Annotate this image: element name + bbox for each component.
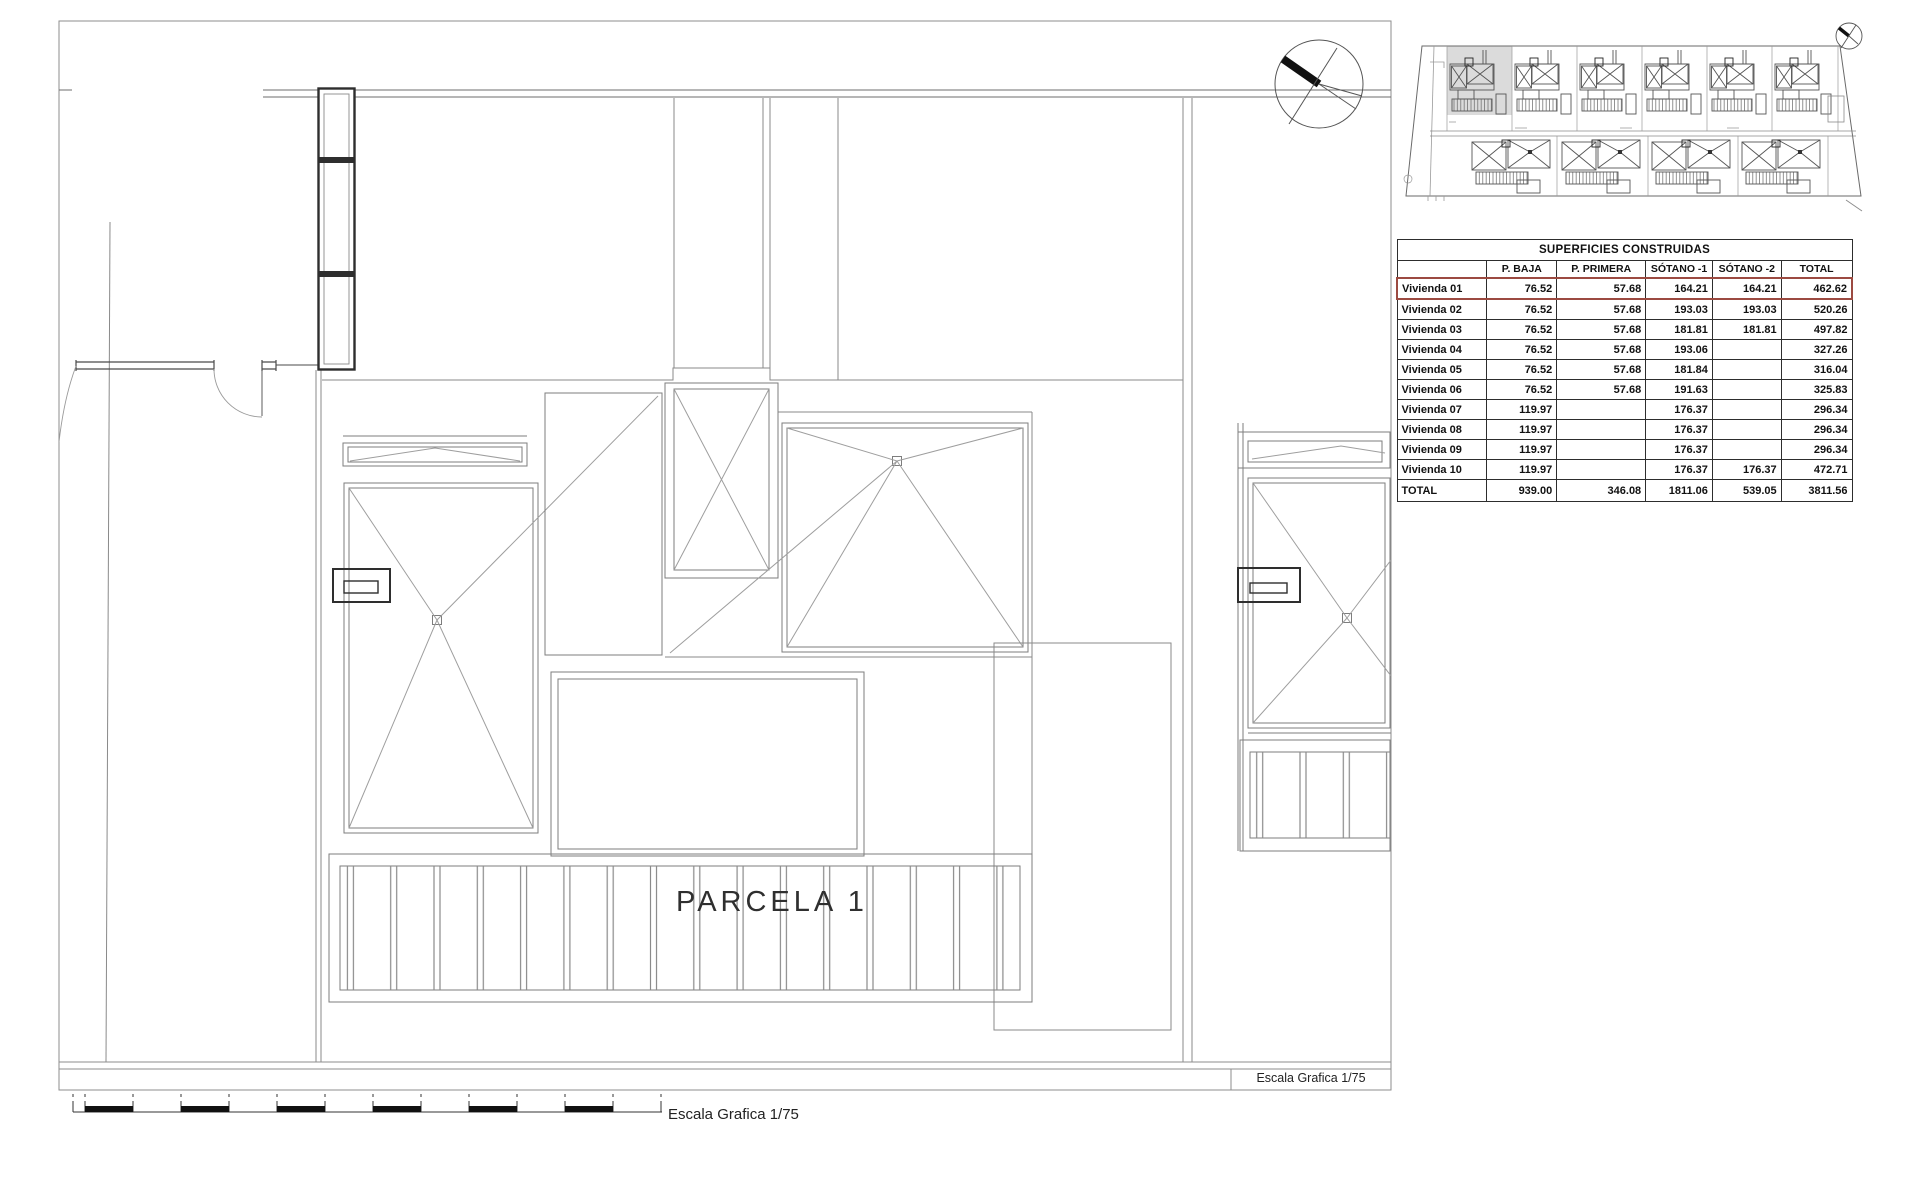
- column-header: SÓTANO -2: [1712, 261, 1781, 279]
- column-header: P. PRIMERA: [1557, 261, 1646, 279]
- area-value: 181.81: [1712, 320, 1781, 340]
- area-value: [1712, 340, 1781, 360]
- entry-door: [59, 360, 318, 442]
- area-value: [1712, 440, 1781, 460]
- table-row: Vivienda 0176.5257.68164.21164.21462.62: [1397, 278, 1852, 299]
- area-value: 119.97: [1487, 420, 1557, 440]
- area-value: [1712, 360, 1781, 380]
- upper-planter: [343, 436, 527, 466]
- area-value: 76.52: [1487, 360, 1557, 380]
- corner-cell: [1397, 261, 1487, 279]
- row-label: Vivienda 02: [1397, 299, 1487, 320]
- area-value: 176.37: [1646, 400, 1713, 420]
- street-lines: [59, 90, 1391, 97]
- area-value: [1557, 460, 1646, 480]
- table-row: Vivienda 10119.97176.37176.37472.71: [1397, 460, 1852, 480]
- area-value: 472.71: [1781, 460, 1852, 480]
- pergola: [329, 854, 1032, 1002]
- area-value: 181.81: [1646, 320, 1713, 340]
- scale-box-label: Escala Grafica 1/75: [1233, 1071, 1389, 1089]
- column-header: SÓTANO -1: [1646, 261, 1713, 279]
- row-label: Vivienda 07: [1397, 400, 1487, 420]
- surface-table-body: SUPERFICIES CONSTRUIDASP. BAJAP. PRIMERA…: [1397, 240, 1852, 502]
- area-value: 57.68: [1557, 320, 1646, 340]
- row-label: Vivienda 01: [1397, 278, 1487, 299]
- area-value: 57.68: [1557, 380, 1646, 400]
- surface-table: SUPERFICIES CONSTRUIDASP. BAJAP. PRIMERA…: [1396, 239, 1853, 502]
- area-value: 327.26: [1781, 340, 1852, 360]
- terrace: [551, 672, 864, 856]
- mini-north-arrow-icon: [1836, 23, 1862, 49]
- skylight-shaft: [665, 383, 778, 578]
- row-label: Vivienda 09: [1397, 440, 1487, 460]
- area-value: 346.08: [1557, 480, 1646, 502]
- area-value: 176.37: [1646, 460, 1713, 480]
- area-value: [1557, 400, 1646, 420]
- row-label: TOTAL: [1397, 480, 1487, 502]
- table-row: Vivienda 07119.97176.37296.34: [1397, 400, 1852, 420]
- surfaces-table: SUPERFICIES CONSTRUIDASP. BAJAP. PRIMERA…: [1396, 239, 1853, 502]
- area-value: 181.84: [1646, 360, 1713, 380]
- table-row: Vivienda 0676.5257.68191.63325.83: [1397, 380, 1852, 400]
- area-value: 296.34: [1781, 400, 1852, 420]
- area-value: 119.97: [1487, 440, 1557, 460]
- area-value: 1811.06: [1646, 480, 1713, 502]
- area-value: 325.83: [1781, 380, 1852, 400]
- row-label: Vivienda 06: [1397, 380, 1487, 400]
- pool: [994, 643, 1171, 1030]
- area-value: 57.68: [1557, 340, 1646, 360]
- area-value: 57.68: [1557, 299, 1646, 320]
- plan-canvas: [0, 0, 1920, 1200]
- sheet-bottom-strip: [59, 1062, 1391, 1090]
- area-value: 164.21: [1712, 278, 1781, 299]
- area-value: 193.06: [1646, 340, 1713, 360]
- column-header: P. BAJA: [1487, 261, 1557, 279]
- table-row: Vivienda 08119.97176.37296.34: [1397, 420, 1852, 440]
- parcel-label: PARCELA 1: [676, 886, 844, 919]
- table-row: Vivienda 0576.5257.68181.84316.04: [1397, 360, 1852, 380]
- main-house-roof-plan: [329, 383, 1171, 1030]
- mini-site-plan: [1404, 23, 1862, 211]
- area-value: 57.68: [1557, 278, 1646, 299]
- table-row: Vivienda 0376.5257.68181.81181.81497.82: [1397, 320, 1852, 340]
- area-value: 462.62: [1781, 278, 1852, 299]
- cad-sheet: PARCELA 1 Escala Grafica 1/75 Escala Gra…: [0, 0, 1920, 1200]
- column-header: TOTAL: [1781, 261, 1852, 279]
- area-value: 119.97: [1487, 460, 1557, 480]
- area-value: 176.37: [1712, 460, 1781, 480]
- area-value: 57.68: [1557, 360, 1646, 380]
- area-value: 939.00: [1487, 480, 1557, 502]
- area-value: 191.63: [1646, 380, 1713, 400]
- area-value: [1557, 420, 1646, 440]
- area-value: [1712, 420, 1781, 440]
- row-label: Vivienda 03: [1397, 320, 1487, 340]
- area-value: 164.21: [1646, 278, 1713, 299]
- table-row: Vivienda 09119.97176.37296.34: [1397, 440, 1852, 460]
- area-value: 76.52: [1487, 320, 1557, 340]
- area-value: 316.04: [1781, 360, 1852, 380]
- area-value: [1712, 400, 1781, 420]
- area-value: 296.34: [1781, 440, 1852, 460]
- table-row: TOTAL939.00346.081811.06539.053811.56: [1397, 480, 1852, 502]
- mailbox: [333, 569, 390, 602]
- area-value: 119.97: [1487, 400, 1557, 420]
- area-value: 193.03: [1646, 299, 1713, 320]
- area-value: 176.37: [1646, 440, 1713, 460]
- neighbor-pergola: [1240, 740, 1390, 851]
- scale-bar-label: Escala Grafica 1/75: [668, 1106, 868, 1123]
- area-value: [1712, 380, 1781, 400]
- area-value: [1557, 440, 1646, 460]
- table-row: Vivienda 0476.5257.68193.06327.26: [1397, 340, 1852, 360]
- tall-planter: [319, 89, 355, 370]
- area-value: 193.03: [1712, 299, 1781, 320]
- row-label: Vivienda 08: [1397, 420, 1487, 440]
- neighbor-house-roof-plan: [1238, 423, 1391, 851]
- area-value: 3811.56: [1781, 480, 1852, 502]
- row-label: Vivienda 10: [1397, 460, 1487, 480]
- table-title: SUPERFICIES CONSTRUIDAS: [1397, 240, 1852, 261]
- area-value: 76.52: [1487, 380, 1557, 400]
- row-label: Vivienda 04: [1397, 340, 1487, 360]
- area-value: 539.05: [1712, 480, 1781, 502]
- area-value: 176.37: [1646, 420, 1713, 440]
- area-value: 296.34: [1781, 420, 1852, 440]
- area-value: 520.26: [1781, 299, 1852, 320]
- row-label: Vivienda 05: [1397, 360, 1487, 380]
- area-value: 76.52: [1487, 340, 1557, 360]
- area-value: 76.52: [1487, 278, 1557, 299]
- entry-roof: [545, 393, 662, 655]
- north-arrow-icon: [1275, 40, 1363, 128]
- right-hip-roof: [670, 423, 1028, 653]
- area-value: 76.52: [1487, 299, 1557, 320]
- scale-bar: [72, 1094, 662, 1112]
- table-row: Vivienda 0276.5257.68193.03193.03520.26: [1397, 299, 1852, 320]
- neighbor-mailbox: [1238, 568, 1300, 602]
- area-value: 497.82: [1781, 320, 1852, 340]
